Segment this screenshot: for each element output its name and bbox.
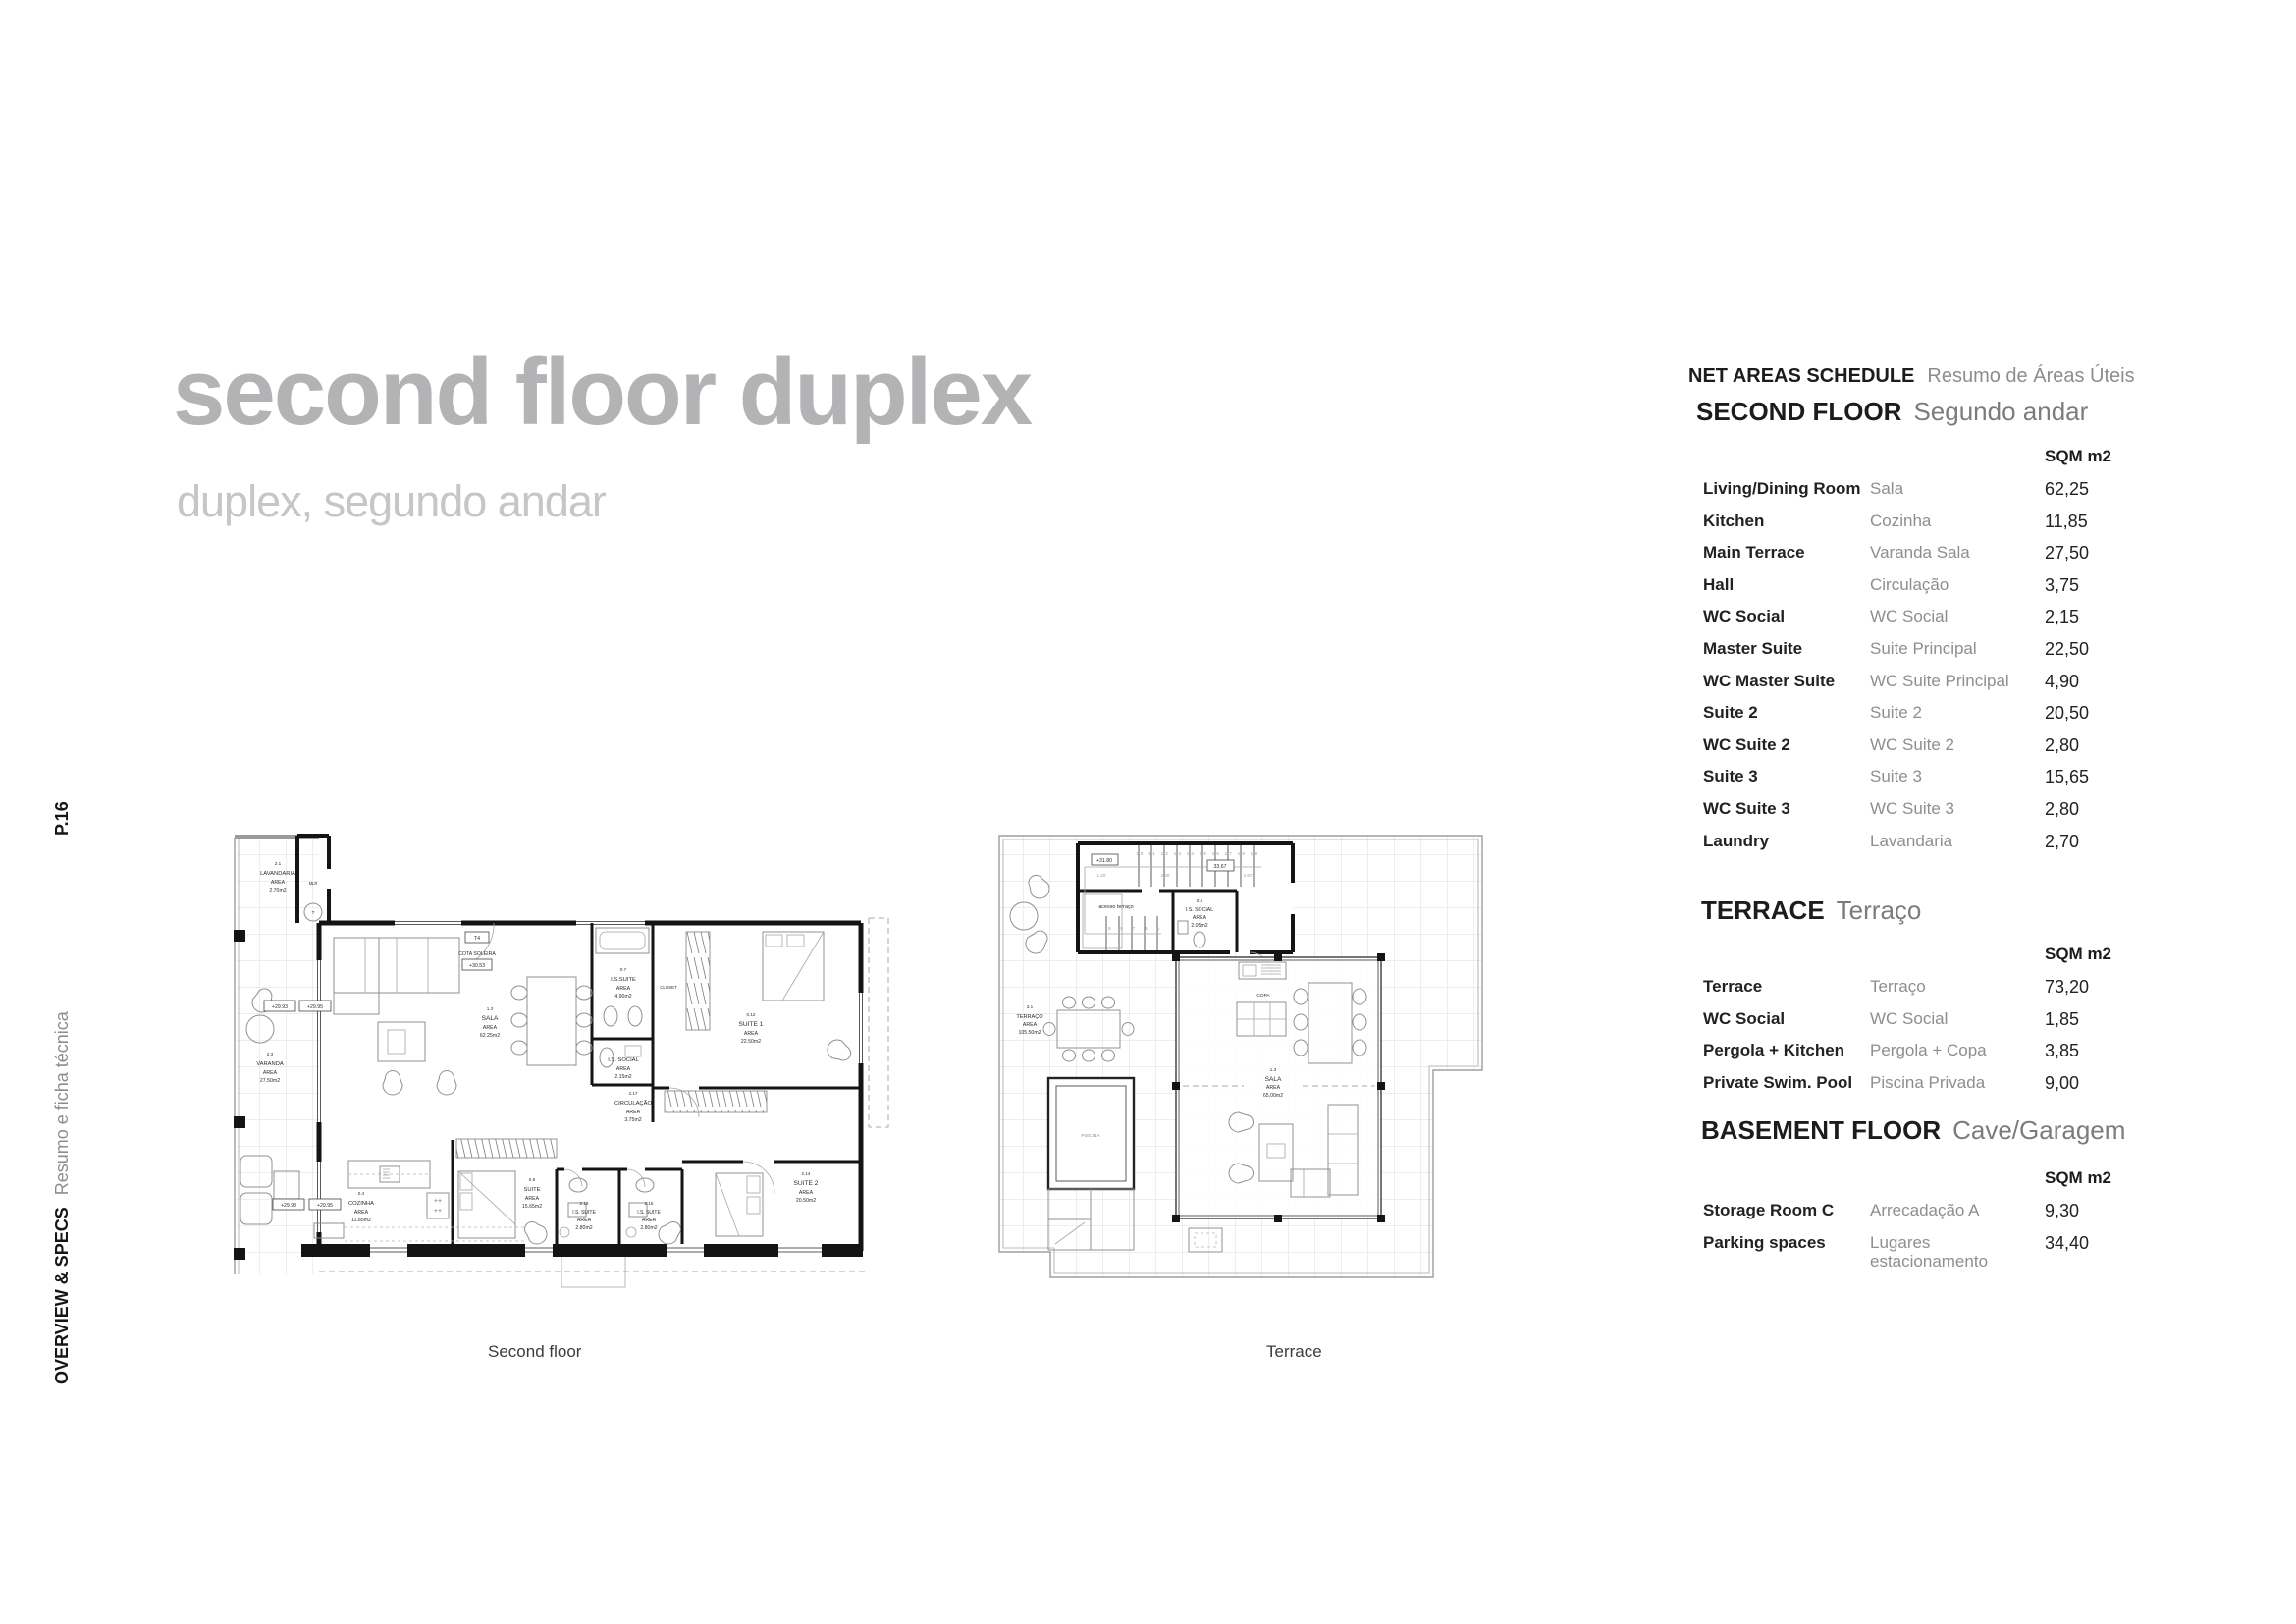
svg-text:65,00m2: 65,00m2 xyxy=(1263,1093,1283,1099)
table-row: Parking spacesLugares estacionamento34,4… xyxy=(1703,1233,2150,1271)
svg-text:2.05m2: 2.05m2 xyxy=(1191,923,1207,929)
svg-text:AREA: AREA xyxy=(525,1196,540,1202)
row-en: WC Suite 2 xyxy=(1703,735,1870,755)
svg-text:AREA: AREA xyxy=(616,1066,631,1072)
svg-text:2.15: 2.15 xyxy=(645,1201,654,1206)
room-label-cozinha: 0.4 COZINHA AREA 11.85m2 xyxy=(348,1191,374,1223)
row-pt: Cozinha xyxy=(1870,512,2045,530)
caption-second-floor: Second floor xyxy=(488,1342,581,1362)
row-en: WC Social xyxy=(1703,607,1870,626)
svg-text:22.50m2: 22.50m2 xyxy=(741,1039,761,1045)
row-en: Living/Dining Room xyxy=(1703,479,1870,499)
svg-text:1.3: 1.3 xyxy=(1270,1067,1277,1072)
svg-text:AREA: AREA xyxy=(642,1218,657,1223)
svg-text:VARANDA: VARANDA xyxy=(256,1061,284,1067)
row-en: Hall xyxy=(1703,575,1870,595)
row-en: Kitchen xyxy=(1703,512,1870,531)
svg-text:AREA: AREA xyxy=(1193,915,1207,921)
row-value: 27,50 xyxy=(2045,543,2150,564)
row-value: 22,50 xyxy=(2045,639,2150,660)
svg-text:2.17: 2.17 xyxy=(629,1091,638,1096)
svg-text:AREA: AREA xyxy=(271,880,286,886)
table-row: Living/Dining RoomSala62,25 xyxy=(1703,479,2150,512)
unit-label: SQM m2 xyxy=(2045,1168,2150,1188)
svg-text:COZINHA: COZINHA xyxy=(348,1201,374,1207)
svg-text:2.16: 2.16 xyxy=(580,1201,589,1206)
row-value: 2,80 xyxy=(2045,735,2150,756)
outer-walls xyxy=(301,918,888,1287)
section-title-en: SECOND FLOOR xyxy=(1696,397,1901,426)
row-pt: WC Suite 2 xyxy=(1870,735,2045,754)
svg-text:I.S. SOCIAL: I.S. SOCIAL xyxy=(608,1057,639,1063)
stair-numbers-lower: 9 8 7 6 5 xyxy=(1108,926,1159,931)
svg-text:0.7: 0.7 xyxy=(620,967,627,972)
svg-text:1.3: 1.3 xyxy=(487,1006,494,1011)
svg-text:TERRAÇO: TERRAÇO xyxy=(1016,1014,1043,1020)
glass-pavilion: COPA 1.3 SALA AREA 65,00m2 xyxy=(1172,953,1385,1222)
svg-text:+29.93: +29.93 xyxy=(281,1203,296,1209)
piscina-label: PISCINA xyxy=(1081,1133,1100,1139)
table-row: Master SuiteSuite Principal22,50 xyxy=(1703,639,2150,672)
table-row: TerraceTerraço73,20 xyxy=(1703,977,2150,1009)
svg-text:62.25m2: 62.25m2 xyxy=(480,1033,500,1039)
section-title-en: TERRACE xyxy=(1701,895,1825,925)
row-value: 2,70 xyxy=(2045,832,2150,852)
floor-plan-second-floor: T MLR xyxy=(233,828,895,1319)
page-title: second floor duplex xyxy=(173,346,1031,440)
net-areas-heading-en: NET AREAS SCHEDULE xyxy=(1688,365,1914,387)
hob-symbol: ++ xyxy=(434,1208,442,1215)
row-pt: WC Suite Principal xyxy=(1870,672,2045,690)
row-en: Suite 3 xyxy=(1703,767,1870,786)
svg-text:27.50m2: 27.50m2 xyxy=(260,1078,280,1084)
row-pt: Varanda Sala xyxy=(1870,543,2045,562)
dim-b: 2.40 xyxy=(1161,873,1170,878)
mlr-label: MLR xyxy=(309,881,318,886)
sidebar-section-en: OVERVIEW & SPECS xyxy=(52,1207,72,1384)
table-header: SQM m2 xyxy=(1703,945,2150,977)
svg-text:15.65m2: 15.65m2 xyxy=(522,1204,542,1210)
svg-text:COTA SOLEIRA: COTA SOLEIRA xyxy=(458,951,496,957)
section-title-pt: Cave/Garagem xyxy=(1952,1115,2125,1145)
svg-text:0.12: 0.12 xyxy=(747,1012,756,1017)
svg-text:3.75m2: 3.75m2 xyxy=(624,1117,641,1123)
svg-text:+29.93: +29.93 xyxy=(272,1004,288,1010)
stair-numbers-upper: 10 11 12 13 14 15 16 17 18 19 xyxy=(1136,851,1257,856)
dim-box: 33.67 xyxy=(1214,864,1227,870)
svg-text:AREA: AREA xyxy=(626,1110,641,1115)
row-pt: Suite Principal xyxy=(1870,639,2045,658)
row-en: Parking spaces xyxy=(1703,1233,1870,1253)
room-label-is-social: I.S. SOCIAL AREA 2.15m2 xyxy=(608,1057,639,1080)
svg-text:LAVANDARIA: LAVANDARIA xyxy=(260,871,295,877)
row-value: 11,85 xyxy=(2045,512,2150,532)
row-value: 1,85 xyxy=(2045,1009,2150,1030)
brochure-page: second floor duplex duplex, segundo anda… xyxy=(0,0,2296,1624)
row-pt: WC Suite 3 xyxy=(1870,799,2045,818)
row-en: Suite 2 xyxy=(1703,703,1870,723)
row-en: WC Suite 3 xyxy=(1703,799,1870,819)
section-title-pt: Segundo andar xyxy=(1913,397,2088,426)
table-row: KitchenCozinha11,85 xyxy=(1703,512,2150,544)
table-row: Suite 3Suite 315,65 xyxy=(1703,767,2150,799)
row-value: 62,25 xyxy=(2045,479,2150,500)
svg-text:AREA: AREA xyxy=(577,1218,592,1223)
row-value: 73,20 xyxy=(2045,977,2150,998)
unit-label: SQM m2 xyxy=(2045,447,2150,466)
caption-terrace: Terrace xyxy=(1266,1342,1322,1362)
room-label-sala: 1.3 SALA AREA 62.25m2 xyxy=(480,1006,500,1039)
table-row: WC Suite 2WC Suite 22,80 xyxy=(1703,735,2150,768)
section-heading-second-floor: SECOND FLOORSegundo andar xyxy=(1696,397,2088,427)
svg-text:SUITE 1: SUITE 1 xyxy=(739,1021,764,1028)
svg-text:I.S.SUITE: I.S.SUITE xyxy=(611,977,636,983)
svg-text:I.S. SUITE: I.S. SUITE xyxy=(572,1210,596,1216)
svg-text:AREA: AREA xyxy=(354,1210,369,1216)
page-number: P.16 xyxy=(52,801,73,836)
row-pt: WC Social xyxy=(1870,607,2045,625)
svg-text:CIRCULAÇÃO: CIRCULAÇÃO xyxy=(614,1100,652,1107)
page-subtitle: duplex, segundo andar xyxy=(177,477,606,526)
svg-text:AREA: AREA xyxy=(1023,1022,1038,1028)
closet-label: CLOSET xyxy=(660,985,677,990)
svg-text:I.S. SUITE: I.S. SUITE xyxy=(637,1210,661,1216)
row-en: Master Suite xyxy=(1703,639,1870,659)
washer-label: T xyxy=(312,910,315,915)
room-label-circulacao: 2.17 CIRCULAÇÃO AREA 3.75m2 xyxy=(614,1091,652,1123)
row-pt: Suite 3 xyxy=(1870,767,2045,785)
room-labels: 2.1 LAVANDARIA AREA 2.70m2 T4 COTA SOLEI… xyxy=(256,861,819,1231)
entry-annotation: T4 COTA SOLEIRA +30.53 xyxy=(458,932,496,970)
svg-text:AREA: AREA xyxy=(263,1070,278,1076)
row-pt: Circulação xyxy=(1870,575,2045,594)
row-en: Main Terrace xyxy=(1703,543,1870,563)
row-value: 15,65 xyxy=(2045,767,2150,787)
row-pt: Lavandaria xyxy=(1870,832,2045,850)
second-floor-table: SQM m2 Living/Dining RoomSala62,25 Kitch… xyxy=(1703,447,2150,863)
svg-text:0.4: 0.4 xyxy=(358,1191,365,1196)
sidebar-section-pt: Resumo e ficha técnica xyxy=(52,1011,72,1195)
svg-text:2.14: 2.14 xyxy=(802,1171,811,1176)
access-label: acesso terraço xyxy=(1098,904,1133,910)
row-value: 3,75 xyxy=(2045,575,2150,596)
row-value: 2,15 xyxy=(2045,607,2150,627)
row-value: 9,30 xyxy=(2045,1201,2150,1221)
table-row: WC Suite 3WC Suite 32,80 xyxy=(1703,799,2150,832)
row-en: WC Master Suite xyxy=(1703,672,1870,691)
table-row: WC Master SuiteWC Suite Principal4,90 xyxy=(1703,672,2150,704)
level-marker: +31.80 xyxy=(1096,858,1112,864)
row-en: Storage Room C xyxy=(1703,1201,1870,1220)
svg-text:105.50m2: 105.50m2 xyxy=(1018,1030,1041,1036)
svg-text:2.1: 2.1 xyxy=(275,861,282,866)
dim-c: 2.67 xyxy=(1244,873,1253,878)
svg-text:SUITE: SUITE xyxy=(523,1187,540,1193)
table-row: Storage Room CArrecadação A9,30 xyxy=(1703,1201,2150,1233)
row-pt: Arrecadação A xyxy=(1870,1201,2045,1219)
svg-text:SALA: SALA xyxy=(1265,1076,1282,1083)
room-label-suite2: 2.14 SUITE 2 AREA 20.50m2 xyxy=(794,1171,819,1204)
unit-label: SQM m2 xyxy=(2045,945,2150,964)
row-pt: Terraço xyxy=(1870,977,2045,996)
svg-text:I.S. SOCIAL: I.S. SOCIAL xyxy=(1186,907,1213,913)
row-en: WC Social xyxy=(1703,1009,1870,1029)
svg-text:AREA: AREA xyxy=(799,1190,814,1196)
room-label-is-suite: 0.7 I.S.SUITE AREA 4.90m2 xyxy=(611,967,636,1000)
svg-text:+29.95: +29.95 xyxy=(317,1203,333,1209)
table-row: LaundryLavandaria2,70 xyxy=(1703,832,2150,864)
row-pt: Piscina Privada xyxy=(1870,1073,2045,1092)
svg-text:T4: T4 xyxy=(474,936,480,942)
dim-a: 1.20 xyxy=(1097,873,1106,878)
svg-text:+30.53: +30.53 xyxy=(469,963,485,969)
section-heading-terrace: TERRACETerraço xyxy=(1701,895,1921,926)
table-row: HallCirculação3,75 xyxy=(1703,575,2150,608)
room-label-suite: 0.9 SUITE AREA 15.65m2 xyxy=(522,1177,542,1210)
table-row: Pergola + KitchenPergola + Copa3,85 xyxy=(1703,1041,2150,1073)
svg-text:20.50m2: 20.50m2 xyxy=(796,1198,816,1204)
net-areas-heading-pt: Resumo de Áreas Úteis xyxy=(1927,365,2134,387)
row-en: Pergola + Kitchen xyxy=(1703,1041,1870,1060)
terrace-table: SQM m2 TerraceTerraço73,20 WC SocialWC S… xyxy=(1703,945,2150,1105)
svg-text:SALA: SALA xyxy=(482,1015,499,1022)
basement-table: SQM m2 Storage Room CArrecadação A9,30 P… xyxy=(1703,1168,2150,1271)
table-row: WC SocialWC Social2,15 xyxy=(1703,607,2150,639)
row-value: 20,50 xyxy=(2045,703,2150,724)
svg-text:2.70m2: 2.70m2 xyxy=(269,888,286,893)
svg-text:2.80m2: 2.80m2 xyxy=(575,1225,592,1231)
row-pt: WC Social xyxy=(1870,1009,2045,1028)
net-areas-heading: NET AREAS SCHEDULEResumo de Áreas Úteis xyxy=(1688,365,2135,388)
row-pt: Suite 2 xyxy=(1870,703,2045,722)
section-heading-basement: BASEMENT FLOORCave/Garagem xyxy=(1701,1115,2125,1146)
table-row: Private Swim. PoolPiscina Privada9,00 xyxy=(1703,1073,2150,1106)
table-row: Suite 2Suite 220,50 xyxy=(1703,703,2150,735)
svg-text:AREA: AREA xyxy=(1266,1085,1281,1091)
svg-text:3.1: 3.1 xyxy=(1027,1004,1034,1009)
row-en: Terrace xyxy=(1703,977,1870,997)
table-row: WC SocialWC Social1,85 xyxy=(1703,1009,2150,1042)
svg-text:AREA: AREA xyxy=(616,986,631,992)
svg-text:0.9: 0.9 xyxy=(529,1177,536,1182)
svg-text:4.90m2: 4.90m2 xyxy=(614,994,631,1000)
floor-plan-terrace: 10 11 12 13 14 15 16 17 18 19 9 8 7 6 5 … xyxy=(996,828,1634,1319)
row-pt: Lugares estacionamento xyxy=(1870,1233,1988,1271)
table-header: SQM m2 xyxy=(1703,447,2150,479)
svg-text:2.3: 2.3 xyxy=(267,1052,274,1056)
copa-label: COPA xyxy=(1256,993,1270,999)
svg-text:2.15m2: 2.15m2 xyxy=(614,1074,631,1080)
svg-text:AREA: AREA xyxy=(483,1025,498,1031)
row-value: 4,90 xyxy=(2045,672,2150,692)
row-pt: Pergola + Copa xyxy=(1870,1041,2045,1059)
section-title-pt: Terraço xyxy=(1837,895,1922,925)
section-title-en: BASEMENT FLOOR xyxy=(1701,1115,1941,1145)
svg-text:2.80m2: 2.80m2 xyxy=(640,1225,657,1231)
row-en: Private Swim. Pool xyxy=(1703,1073,1870,1093)
room-label-suite1: 0.12 SUITE 1 AREA 22.50m2 xyxy=(739,1012,764,1045)
table-header: SQM m2 xyxy=(1703,1168,2150,1201)
svg-text:+29.95: +29.95 xyxy=(307,1004,323,1010)
svg-text:0.5: 0.5 xyxy=(1197,898,1203,903)
table-row: Main TerraceVaranda Sala27,50 xyxy=(1703,543,2150,575)
row-value: 34,40 xyxy=(2045,1233,2150,1254)
row-value: 3,85 xyxy=(2045,1041,2150,1061)
row-value: 2,80 xyxy=(2045,799,2150,820)
row-value: 9,00 xyxy=(2045,1073,2150,1094)
svg-text:AREA: AREA xyxy=(744,1031,759,1037)
svg-text:11.85m2: 11.85m2 xyxy=(351,1218,371,1223)
sidebar-section: OVERVIEW & SPECSResumo e ficha técnica xyxy=(52,1011,73,1384)
hob-symbol: ++ xyxy=(434,1198,442,1205)
svg-text:SUITE 2: SUITE 2 xyxy=(794,1180,819,1187)
row-pt: Sala xyxy=(1870,479,2045,498)
row-en: Laundry xyxy=(1703,832,1870,851)
